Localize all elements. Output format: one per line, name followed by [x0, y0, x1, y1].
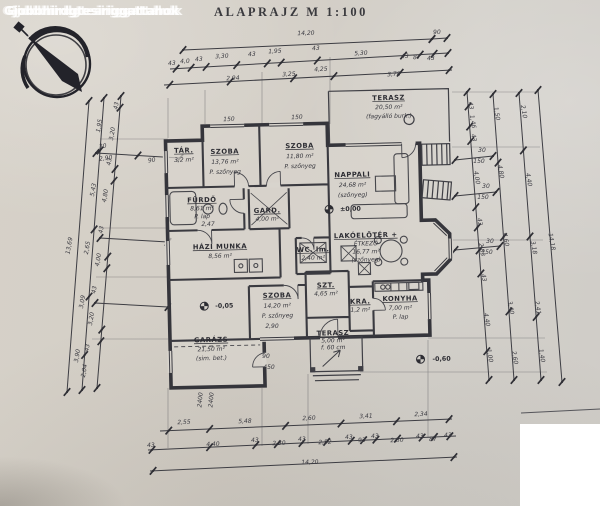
dimension-value: 14,18 — [547, 233, 557, 251]
dimension-value: 43 — [401, 53, 409, 60]
dimension-value: 2,50 — [390, 437, 404, 444]
dimension-value: 2,55 — [177, 419, 191, 426]
dimension-value: 150 — [291, 114, 303, 121]
dimension-value: 1,95 — [95, 118, 104, 133]
level-marker-text: ±0,00 — [340, 206, 362, 213]
dimension-value: 87 — [429, 436, 437, 443]
dimension-value: 1,50 — [492, 107, 501, 122]
dimension-value: 43 — [312, 45, 320, 52]
dimension-value: 4,80 — [101, 188, 110, 203]
north-arrow-compass-icon — [13, 21, 90, 97]
dimension-value: 43 — [475, 217, 483, 226]
dimension-value: 14,20 — [297, 30, 315, 38]
dimension-value: 43 — [416, 433, 424, 440]
dimension-value: 43 — [444, 432, 452, 439]
dimension-value: 2,60 — [510, 351, 519, 366]
level-marker-text: -0,60 — [432, 356, 451, 363]
dimension-value: 43 — [168, 60, 176, 67]
floorplan-drawing: TÁR.3,2 m²SZOBA13,76 m²P. szőnyegSZOBA11… — [0, 0, 600, 506]
dimension-value: 43 — [147, 442, 155, 449]
dimension-value: 2,60 — [302, 415, 316, 422]
dimension-value: 14,20 — [301, 459, 319, 467]
dimension-value: 3,18 — [529, 241, 538, 256]
dimension-value: 1,95 — [268, 48, 282, 56]
white-paper-corner — [520, 424, 600, 506]
dimension-value: 2,65 — [83, 240, 92, 255]
dimension-value: 4,25 — [314, 66, 328, 74]
dimension-value: 4,40 — [206, 441, 220, 448]
dimension-value: 43 — [469, 133, 477, 142]
dimension-value: 5,48 — [238, 418, 252, 425]
room-label-garazs: GARÁZS21,50 m²(sim. bet.) — [194, 335, 229, 363]
dimension-value: 150 — [481, 249, 493, 256]
dimension-value: 43 — [298, 436, 306, 443]
dimension-value: 90 — [262, 353, 270, 360]
dimension-value: 43 — [479, 273, 487, 282]
dimension-value: 1,40 — [537, 349, 546, 364]
dimension-value: 2400 — [207, 392, 215, 408]
dimension-value: 87 — [413, 54, 421, 61]
paper-edge-line — [521, 409, 600, 413]
dimension-value: 13,69 — [65, 236, 75, 254]
dimension-value: 43 — [466, 101, 474, 110]
dimension-value: 43 — [371, 433, 379, 440]
dimension-value: 2,30 — [272, 440, 286, 447]
scanned-floorplan-photo: Gjobbhirdgtesiriggattahok ALAPRAJZ M 1:1… — [0, 0, 600, 506]
dimension-value: 43 — [112, 101, 120, 110]
dimension-value: 43 — [195, 56, 203, 63]
dimension-value: 3,90 — [73, 348, 82, 363]
dimension-value: 2,52 — [318, 439, 332, 446]
dimension-value: 4,60 — [501, 233, 510, 248]
level-marker-text: -0,05 — [215, 303, 233, 310]
dimension-value: 30 — [99, 142, 108, 150]
dimension-value: 150 — [473, 158, 485, 165]
dimension-value: 90 — [148, 156, 157, 164]
dimension-value: 450 — [263, 364, 275, 371]
room-label-terasz-felso: TERASZ20,50 m²(fagyálló burk.) — [366, 93, 412, 120]
dimension-value: 93 — [358, 437, 366, 444]
dimension-value: 3,78 — [387, 71, 401, 79]
dimension-value: 43 — [251, 437, 259, 444]
dimension-value: 30 — [478, 147, 486, 154]
dimension-value: 90 — [433, 29, 441, 36]
dimension-value: 2,94 — [226, 75, 240, 83]
dimension-value: 30 — [482, 183, 490, 190]
dimension-value: 43 — [248, 51, 256, 58]
dimension-value: 4,00 — [94, 252, 103, 267]
dimension-value: 3,41 — [359, 413, 373, 420]
dimension-value: 2,90 — [265, 323, 279, 330]
dimension-value: 4,40 — [482, 313, 491, 328]
dimension-value: 2,47 — [201, 221, 215, 228]
dimension-value: 4,00 — [472, 171, 481, 186]
dimension-value: 2,34 — [414, 411, 428, 418]
dimension-value: 43 — [90, 285, 98, 294]
dimension-value: 3,25 — [282, 71, 296, 79]
watermark-text: Gjobbhirdgtesiriggattahok — [4, 3, 179, 18]
room-label-szoba-1: SZOBA13,76 m²P. szőnyeg — [209, 147, 241, 176]
dimension-value: 43 — [345, 434, 353, 441]
dimension-value: 2,41 — [533, 301, 542, 315]
dimension-value: 150 — [223, 116, 235, 123]
room-label-szoba-3: SZOBA14,20 m²P. szőnyeg — [261, 291, 293, 320]
dimension-value: 3,09 — [78, 294, 87, 309]
dimension-value: 43 — [97, 225, 105, 234]
drawing-title: ALAPRAJZ M 1:100 — [214, 5, 368, 20]
room-label-terasz-also: TERASZ5,00 m²f. 60 cm — [317, 329, 350, 352]
dimension-value: 1,00 — [485, 349, 494, 364]
dimension-value: 4,40 — [524, 173, 533, 188]
dimension-value: 4,80 — [496, 165, 505, 180]
dimension-value: 4,0 — [180, 58, 190, 65]
dimension-value: 2,04 — [80, 363, 89, 378]
dimension-value: 2,10 — [519, 105, 528, 120]
dimension-value: 30 — [486, 238, 494, 245]
room-label-nappali: NAPPALI24,68 m²(szőnyeg) — [334, 170, 371, 199]
dimension-value: 5,30 — [354, 50, 368, 58]
dimension-value: 3,30 — [215, 53, 229, 61]
dimension-value: 43 — [427, 55, 435, 62]
dimension-value: 43 — [83, 343, 91, 352]
dimension-value: 2400 — [196, 392, 204, 408]
dimension-value: 150 — [477, 194, 489, 201]
room-label-szoba-2: SZOBA11,80 m²P. szőnyeg — [284, 142, 316, 171]
dimension-value: 3,20 — [87, 311, 96, 326]
